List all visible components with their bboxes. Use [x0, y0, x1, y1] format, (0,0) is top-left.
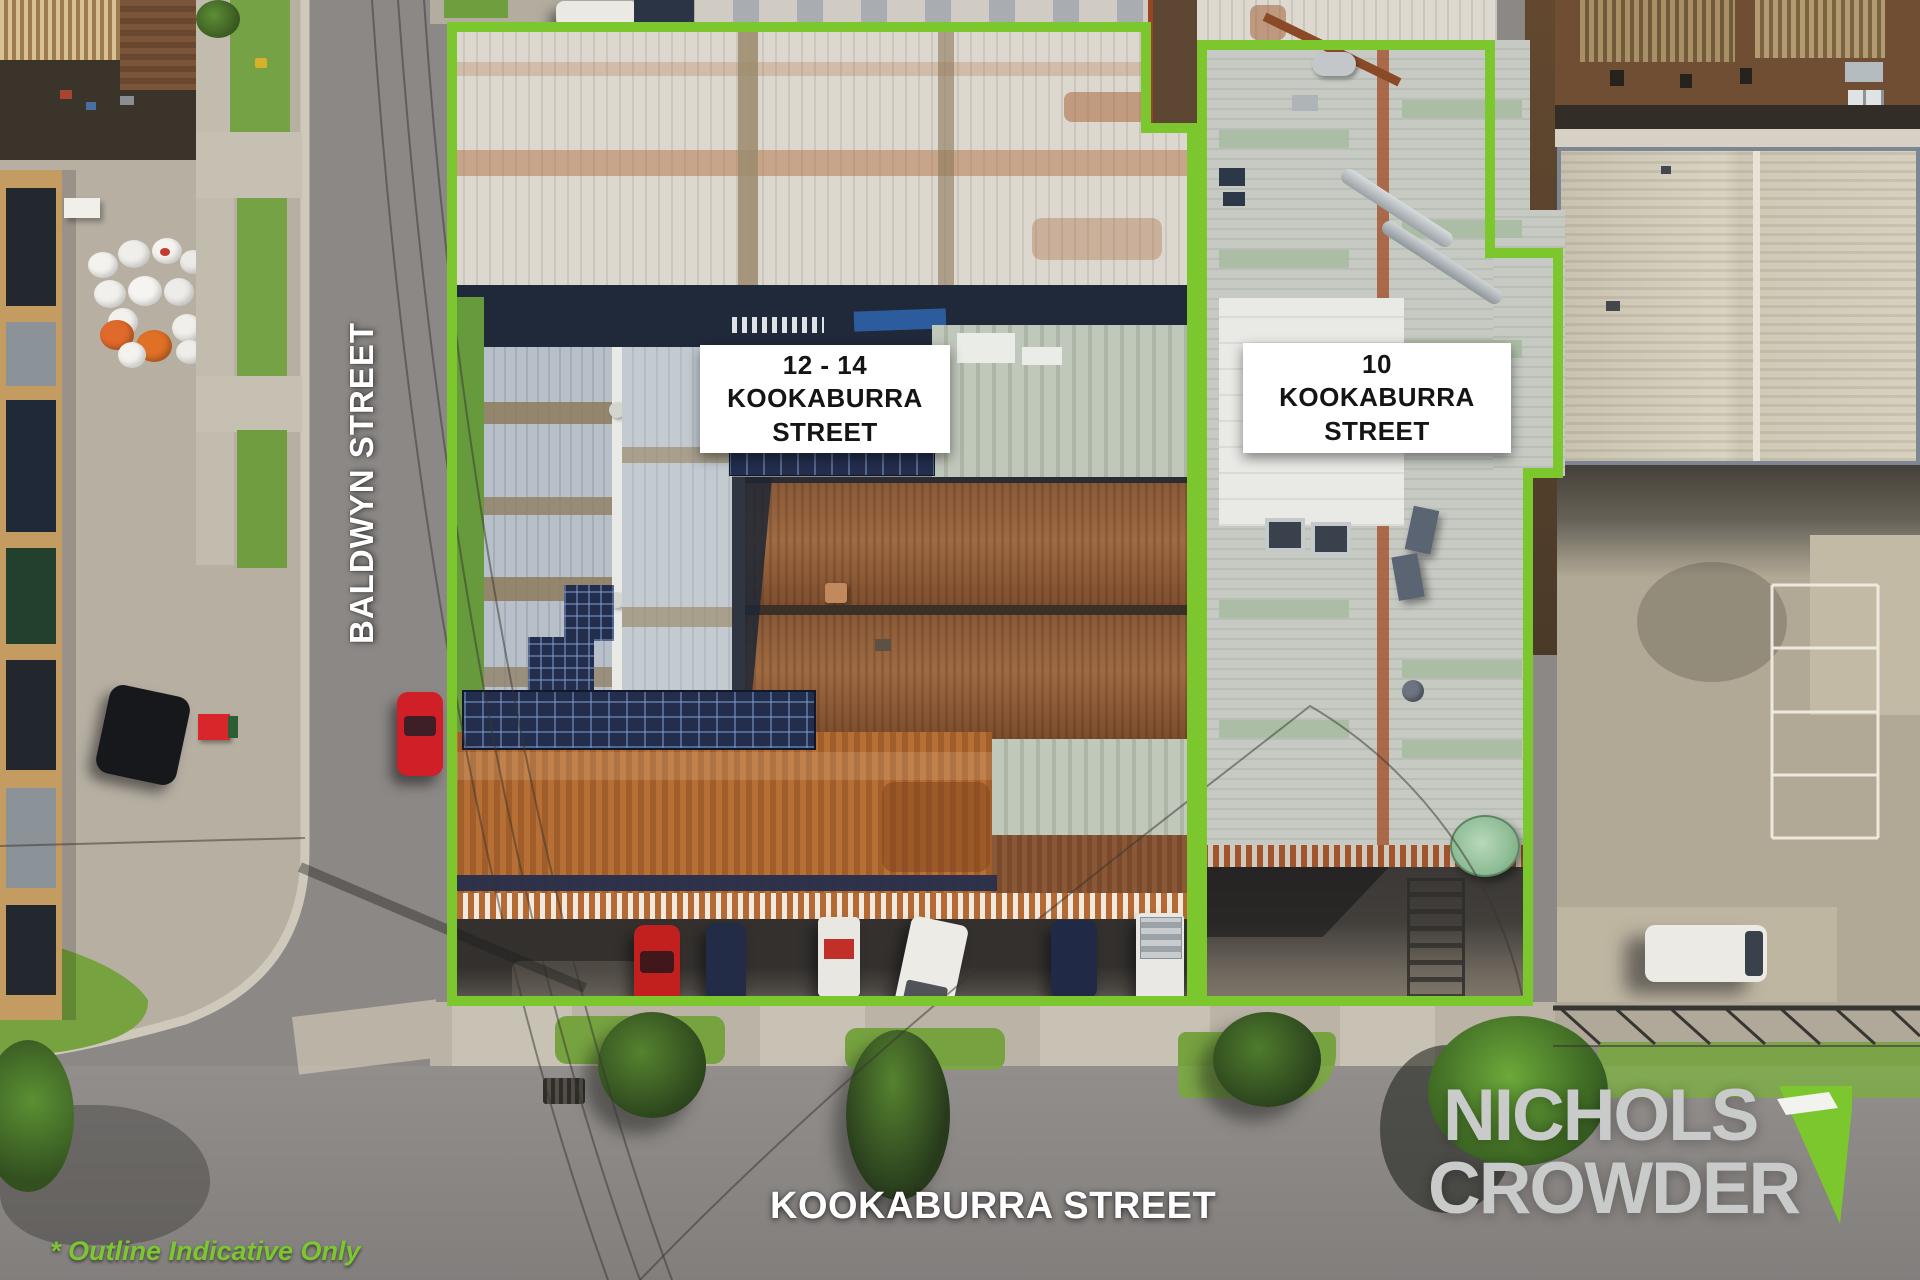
label-line: STREET: [1324, 415, 1430, 448]
label-property-10: 10 KOOKABURRA STREET: [1243, 343, 1511, 453]
pole-shadow: [300, 867, 585, 988]
aerial-photo-scene: 12 - 14 KOOKABURRA STREET 10 KOOKABURRA …: [0, 0, 1920, 1280]
label-line: 12 - 14: [783, 349, 867, 382]
label-property-12-14: 12 - 14 KOOKABURRA STREET: [700, 345, 950, 453]
street-label-kookaburra: KOOKABURRA STREET: [770, 1185, 1150, 1228]
label-line: 10: [1362, 348, 1392, 381]
boundary-fence: [1553, 1008, 1920, 1046]
label-line: KOOKABURRA: [727, 382, 923, 415]
label-line: KOOKABURRA: [1279, 381, 1475, 414]
street-label-baldwyn: BALDWYN STREET: [343, 344, 381, 644]
logo-nichols: NICHOLS: [1443, 1079, 1758, 1152]
outline-disclaimer: * Outline Indicative Only: [50, 1236, 361, 1267]
power-lines: [0, 0, 1522, 1280]
outline-property-12-14: [452, 27, 1192, 1001]
logo-crowder: CROWDER: [1428, 1152, 1799, 1225]
label-line: STREET: [772, 416, 878, 449]
outline-property-10: [1202, 45, 1558, 1001]
parking-lines: [1772, 585, 1878, 838]
